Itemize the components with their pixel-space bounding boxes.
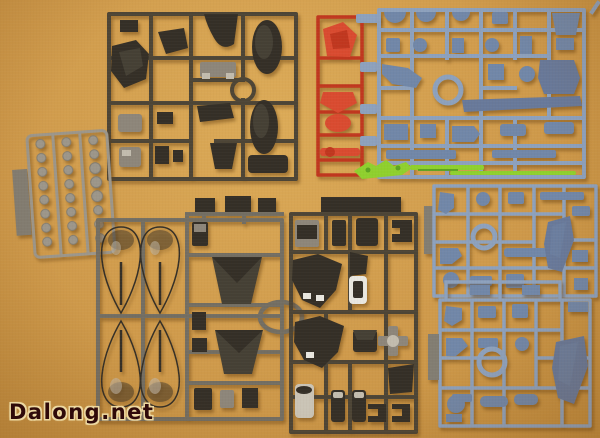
funnel-part (210, 143, 237, 169)
ring-gate (479, 349, 505, 375)
sprue-top-right-blue (379, 3, 598, 177)
leg-shell-part (141, 321, 180, 407)
photo-model-kit-sprues: Dalong.net (0, 0, 600, 438)
wing-part (197, 103, 234, 122)
rifle-stock-part (552, 13, 580, 35)
saber-blade-part (450, 171, 576, 175)
leg-shell-part (102, 321, 141, 407)
front-skirt-part (320, 92, 357, 113)
ring-gate (232, 79, 254, 101)
backpack-part (158, 28, 188, 54)
runner-tag (321, 197, 401, 214)
sprue-top-left-dark (109, 14, 296, 179)
sprue-right-upper-blue (424, 186, 596, 296)
sprue-right-lower-blue (428, 282, 590, 426)
sprues-illustration (0, 0, 600, 438)
sprue-torso-dark (291, 197, 416, 432)
crosshair-part (378, 326, 408, 356)
runner-tag (428, 334, 439, 380)
sensor-part (349, 276, 367, 304)
rifle-body-part (538, 60, 580, 94)
polycap-parts (36, 135, 106, 246)
leg-shell-part (102, 227, 141, 313)
sprue-red (318, 14, 380, 175)
leg-shell-part (141, 227, 180, 313)
watermark-text: Dalong.net (9, 400, 154, 424)
ring-gate (435, 77, 461, 103)
cowl-part (204, 14, 238, 47)
skirt-part (388, 364, 414, 394)
sprue-legs-dark (98, 196, 302, 419)
ring-gate (473, 226, 495, 248)
